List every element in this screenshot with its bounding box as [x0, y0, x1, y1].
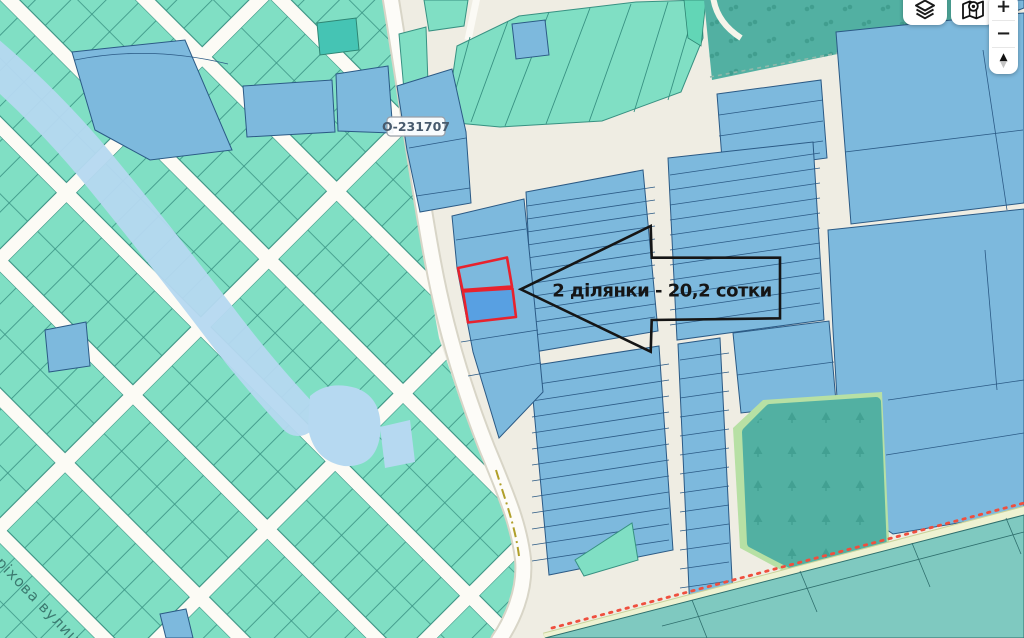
zoom-in-button[interactable]: + [989, 0, 1018, 20]
zoom-out-button[interactable]: − [989, 21, 1018, 47]
map-pin-icon [960, 0, 986, 22]
map-canvas[interactable]: оріхова вулиця [0, 0, 1024, 638]
highlighted-parcel[interactable] [458, 258, 516, 323]
layers-icon [912, 0, 938, 22]
svg-text:О-231707: О-231707 [382, 119, 450, 134]
arrow-down-icon: ▼ [1000, 62, 1007, 69]
annotation-text: 2 ділянки - 20,2 сотки [552, 281, 771, 302]
pan-reset-button[interactable]: ▲ ▼ [989, 48, 1018, 74]
zoom-control: + − ▲ ▼ [989, 0, 1018, 74]
road-label: О-231707 [382, 117, 450, 136]
layers-button[interactable] [903, 0, 947, 25]
map-application: оріхова вулиця [0, 0, 1024, 638]
